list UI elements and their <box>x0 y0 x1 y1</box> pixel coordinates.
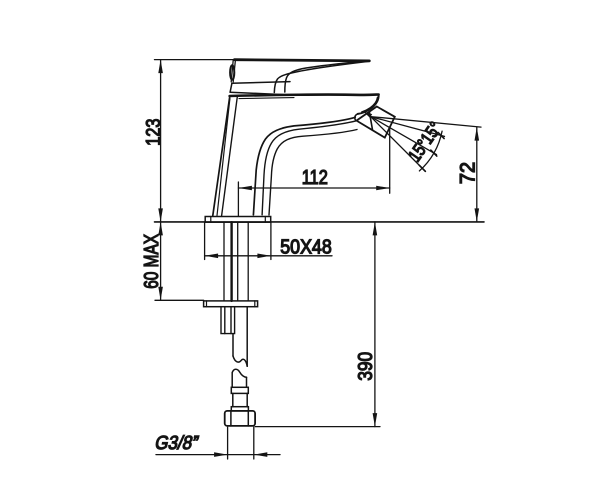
svg-text:50X48: 50X48 <box>280 237 331 259</box>
svg-text:72: 72 <box>456 162 480 184</box>
svg-text:112: 112 <box>302 165 328 188</box>
svg-text:G3/8”: G3/8” <box>153 431 200 453</box>
svg-text:60 MAX: 60 MAX <box>140 234 162 289</box>
svg-text:123: 123 <box>141 119 164 146</box>
svg-text:390: 390 <box>354 352 376 381</box>
